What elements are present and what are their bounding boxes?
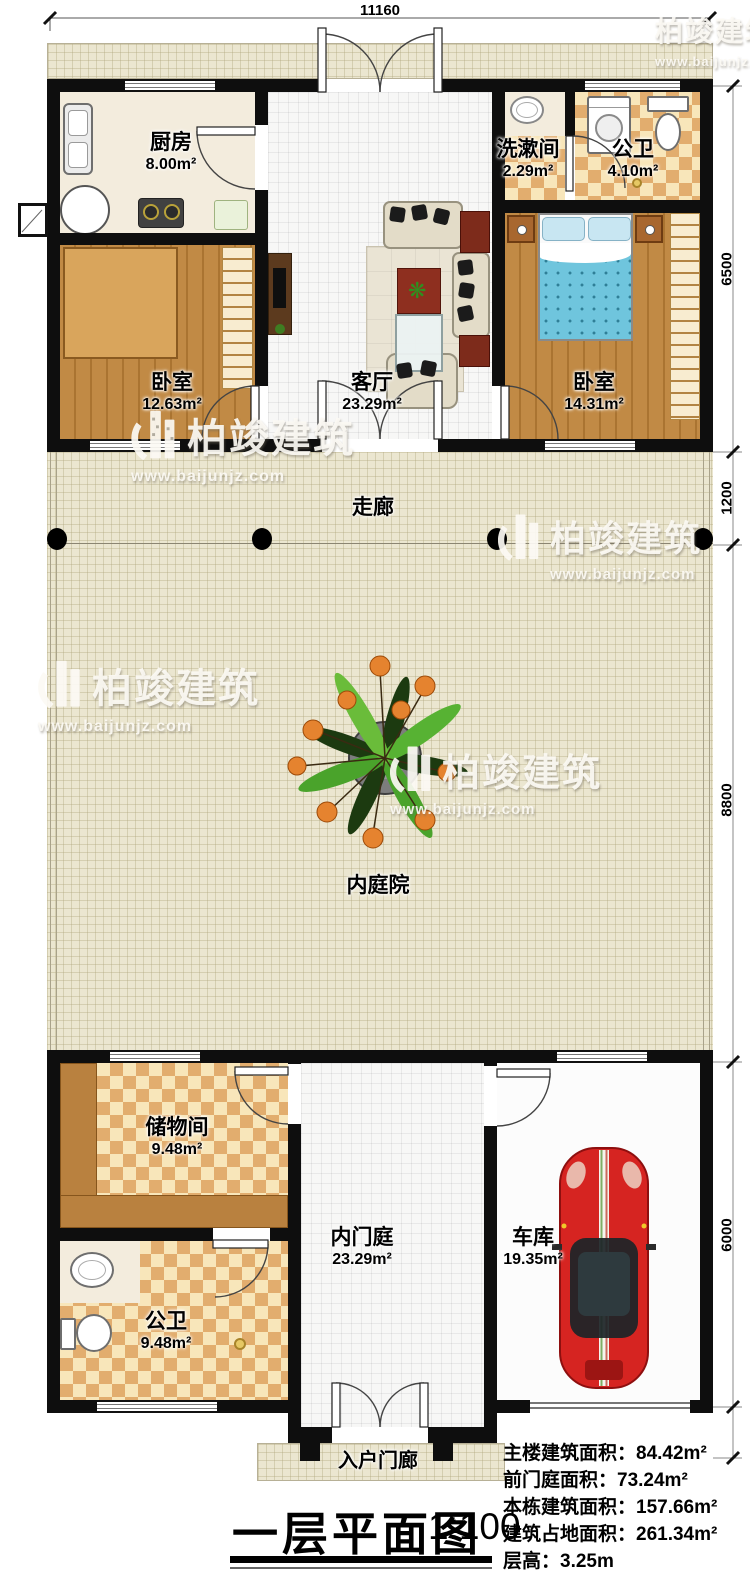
dimension-right-line [713, 86, 742, 1458]
watermark: 柏竣建筑 www.baijunjz.com [390, 742, 550, 818]
room-label-washroom: 洗漱间 2.29m² [497, 138, 560, 182]
watermark: 柏竣建筑 www.baijunjz.com [498, 510, 650, 583]
stat-floor-height: 层高：3.25m [503, 1548, 717, 1575]
wall-kitchen-living [255, 92, 268, 125]
wall-bedroomleft-living [255, 245, 268, 386]
room-label-courtyard: 内庭院 [347, 874, 410, 899]
wall-garage-stub [690, 1400, 713, 1413]
porch-pier [433, 1443, 453, 1461]
sofa-cushion [389, 206, 406, 223]
wall-foyer-bottom [301, 1427, 332, 1443]
sofa-cushion [420, 360, 438, 378]
bed-sheet-fold [540, 243, 631, 263]
room-area: 9.48m² [141, 1335, 192, 1354]
watermark-url: www.baijunjz.com [655, 54, 750, 69]
lamp-icon [517, 225, 527, 235]
watermark-url: www.baijunjz.com [38, 718, 206, 736]
stat-total-building-area: 本栋建筑面积：157.66m² [503, 1494, 717, 1521]
wall-right-lower [700, 1050, 713, 1413]
wall-foyer-bottom [428, 1427, 484, 1443]
wall-garage-stub [497, 1400, 530, 1413]
window-storage [110, 1050, 200, 1063]
watermark-brand: 柏竣建筑 [655, 10, 750, 50]
watermark-logo-icon [390, 742, 436, 800]
window-kitchen [125, 79, 215, 92]
room-name: 公卫 [608, 138, 659, 163]
watermark: 柏竣建筑 www.baijunjz.com [131, 406, 299, 486]
wall-storage-bath [270, 1228, 301, 1241]
stove-icon [138, 198, 184, 228]
toilet-tank [647, 96, 689, 112]
title-underline-thin [230, 1567, 492, 1569]
garage-door-line [530, 1407, 690, 1409]
room-area: 14.31m² [564, 396, 624, 415]
wall-foyer-left [288, 1050, 301, 1064]
room-name: 走廊 [352, 496, 394, 521]
nightstand [507, 215, 535, 243]
sink-bowl [516, 102, 538, 118]
watermark-logo-icon [498, 510, 544, 568]
room-label-garage: 车库 19.35m² [503, 1226, 563, 1270]
watermark-url: www.baijunjz.com [131, 468, 299, 486]
title-underline-thick [230, 1556, 492, 1563]
room-name: 厨房 [146, 131, 197, 156]
nightstand [635, 215, 663, 243]
room-area: 8.00m² [146, 156, 197, 175]
tv-cabinet [460, 211, 490, 253]
stat-front-court-area: 前门庭面积：73.24m² [503, 1467, 717, 1494]
room-label-bedroom-right: 卧室 14.31m² [564, 371, 624, 415]
bed-left [63, 247, 178, 359]
dimension-ticks-right [727, 80, 739, 1464]
room-area: 12.63m² [142, 396, 202, 415]
room-name: 卧室 [564, 371, 624, 396]
kitchen-round-table [60, 185, 110, 235]
watermark-logo-icon [38, 656, 86, 716]
room-label-bath-top: 公卫 4.10m² [608, 138, 659, 182]
column [47, 528, 67, 550]
cutting-board [214, 200, 248, 230]
room-area: 23.29m² [342, 396, 402, 415]
room-area: 19.35m² [503, 1251, 563, 1270]
dimension-right-6500: 6500 [719, 252, 736, 285]
wall-foyer-left [288, 1124, 301, 1443]
tv-cabinet [459, 335, 490, 367]
sink-basin [68, 142, 88, 168]
stat-footprint-area: 建筑占地面积：261.34m² [503, 1521, 717, 1548]
room-name: 客厅 [342, 371, 402, 396]
flue-box [18, 203, 48, 237]
room-label-porch: 入户门廊 [338, 1450, 418, 1474]
room-label-storage: 储物间 9.48m² [146, 1116, 209, 1160]
watermark-logo-icon [131, 406, 181, 468]
room-name: 储物间 [146, 1116, 209, 1141]
dimension-top: 11160 [360, 2, 400, 19]
building-stats: 主楼建筑面积：84.42m² 前门庭面积：73.24m² 本栋建筑面积：157.… [503, 1440, 717, 1575]
room-name: 内庭院 [347, 874, 410, 899]
floor-drain-icon [234, 1338, 246, 1350]
wall-bath-bedroom [492, 200, 713, 213]
porch-pier [300, 1443, 320, 1461]
toilet-tank [60, 1318, 76, 1350]
plant-icon [275, 324, 285, 334]
room-label-corridor: 走廊 [352, 496, 394, 521]
lamp-icon [645, 225, 655, 235]
window-bath-top [585, 79, 680, 92]
room-name: 入户门廊 [338, 1450, 418, 1474]
watermark: 柏竣建筑 www.baijunjz.com [38, 656, 206, 736]
toilet-icon [655, 113, 681, 151]
toilet-icon [76, 1314, 112, 1352]
room-name: 卧室 [142, 371, 202, 396]
washer-panel [589, 98, 629, 108]
room-label-bedroom-left: 卧室 12.63m² [142, 371, 202, 415]
wall-right-upper [700, 79, 713, 452]
terrace-door-opening [322, 79, 438, 92]
window-garage [557, 1050, 647, 1063]
room-name: 车库 [503, 1226, 563, 1251]
closet-right-bedroom [670, 213, 700, 420]
sink-bowl [78, 1260, 106, 1280]
dimension-top-line [50, 18, 710, 31]
sofa-cushion [458, 282, 475, 299]
wall-foyer-right [484, 1126, 497, 1443]
sofa-cushion [411, 204, 428, 221]
closet-left-bedroom [222, 247, 253, 389]
watermark-url: www.baijunjz.com [498, 566, 650, 583]
pillow [542, 217, 585, 241]
dimension-right-8800: 8800 [719, 783, 736, 816]
room-name: 公卫 [141, 1310, 192, 1335]
wall-foyer-right [484, 1050, 497, 1066]
room-area: 9.48m² [146, 1141, 209, 1160]
wall-living-bedroomright [492, 213, 505, 386]
monitor-icon [273, 268, 286, 308]
terrace-strip [47, 43, 713, 79]
room-label-living-room: 客厅 23.29m² [342, 371, 402, 415]
floor-plan: 11160 [0, 0, 750, 1581]
room-area: 4.10m² [608, 163, 659, 182]
watermark: 柏竣建筑 www.baijunjz.com [655, 10, 750, 69]
room-area: 2.29m² [497, 163, 560, 182]
wall-storage-bath [47, 1228, 213, 1241]
burner-icon [164, 204, 180, 220]
room-label-bath-bottom: 公卫 9.48m² [141, 1310, 192, 1354]
room-name: 洗漱间 [497, 138, 560, 163]
sink-basin [68, 110, 88, 136]
column [252, 528, 272, 550]
sofa-cushion [457, 305, 475, 323]
storage-shelf [60, 1195, 288, 1228]
room-label-inner-foyer: 内门庭 23.29m² [331, 1226, 394, 1270]
pillow [588, 217, 631, 241]
dimension-right-1200: 1200 [719, 481, 736, 514]
sofa-cushion [457, 259, 474, 276]
room-name: 内门庭 [331, 1226, 394, 1251]
watermark-url: www.baijunjz.com [390, 801, 550, 818]
garage-door-line [530, 1402, 690, 1404]
room-label-kitchen: 厨房 8.00m² [146, 131, 197, 175]
wall-kitchen-bedroom [47, 233, 268, 245]
stat-main-building-area: 主楼建筑面积：84.42m² [503, 1440, 717, 1467]
window-bath-bottom [97, 1400, 217, 1413]
burner-icon [143, 204, 159, 220]
window-bedroom-right [545, 439, 635, 452]
wall-washroom-bath [565, 92, 575, 136]
dimension-right-6000: 6000 [719, 1218, 736, 1251]
wall-left-upper [47, 79, 60, 452]
room-area: 23.29m² [331, 1251, 394, 1270]
table-plant-icon: ❋ [408, 278, 426, 304]
